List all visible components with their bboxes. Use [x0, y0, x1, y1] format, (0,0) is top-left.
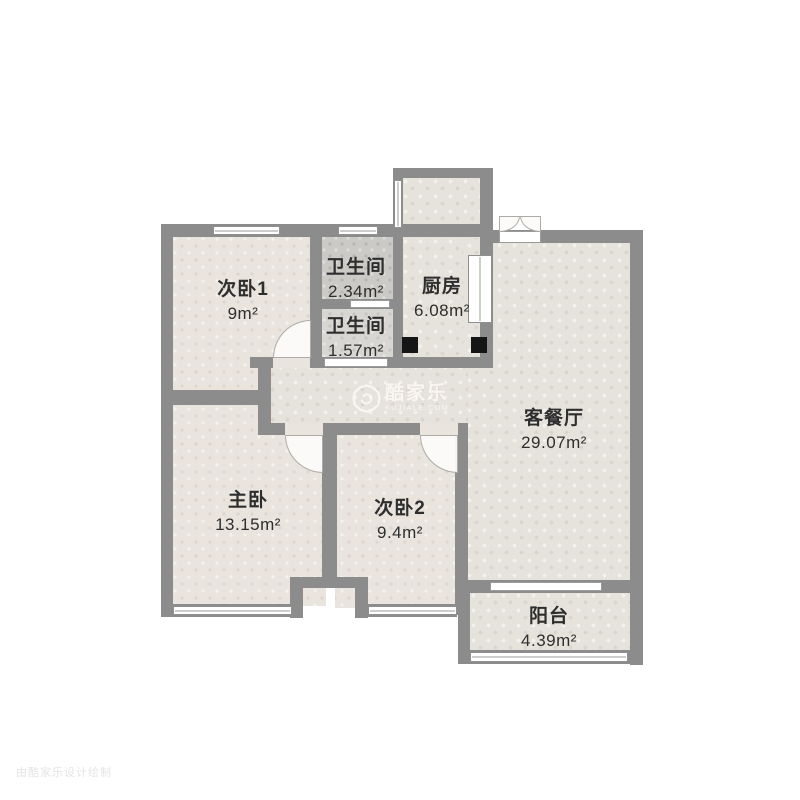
room-name: 客餐厅 [521, 408, 587, 430]
door-opening [273, 357, 310, 368]
room-name: 卫生间 [326, 257, 386, 279]
room-name: 次卧2 [374, 498, 426, 520]
wall [161, 224, 173, 617]
window [468, 255, 492, 323]
room-label-bath-lower: 卫生间 1.57m² [326, 316, 386, 363]
room-area: 2.34m² [326, 279, 386, 304]
window [213, 226, 280, 235]
door-opening [420, 423, 458, 435]
room-label-bedroom2: 次卧2 9.4m² [374, 498, 426, 545]
entry-door-threshold [499, 231, 541, 243]
window [490, 582, 602, 591]
wall [355, 577, 368, 618]
flue-shaft-icon [471, 337, 487, 353]
floor-plan-canvas: 次卧1 9m² 卫生间 2.34m² 厨房 6.08m² 卫生间 1.57m² … [0, 0, 800, 800]
wall [393, 168, 492, 178]
room-area: 1.57m² [326, 338, 386, 363]
room-label-bedroom1: 次卧1 9m² [217, 279, 269, 326]
room-name: 厨房 [414, 276, 470, 298]
room-name: 阳台 [521, 606, 577, 628]
window [470, 652, 628, 662]
window [173, 606, 292, 615]
door-opening [285, 423, 323, 435]
window [394, 180, 402, 228]
room-label-living: 客餐厅 29.07m² [521, 408, 587, 455]
wall [161, 390, 262, 405]
wall [322, 435, 337, 580]
room-area: 9m² [217, 301, 269, 326]
window [338, 226, 378, 235]
room-area: 6.08m² [414, 298, 470, 323]
room-label-master: 主卧 13.15m² [215, 490, 281, 537]
room-label-bath-upper: 卫生间 2.34m² [326, 257, 386, 304]
room-label-balcony: 阳台 4.39m² [521, 606, 577, 653]
wall [258, 357, 271, 435]
wall [630, 230, 643, 665]
room-floor-corridor [258, 360, 468, 426]
room-name: 卫生间 [326, 316, 386, 338]
wall [310, 237, 322, 358]
room-area: 13.15m² [215, 512, 281, 537]
room-name: 主卧 [215, 490, 281, 512]
room-area: 29.07m² [521, 430, 587, 455]
corner-watermark: 由酷家乐设计绘制 [16, 764, 112, 780]
room-area: 4.39m² [521, 628, 577, 653]
room-label-kitchen: 厨房 6.08m² [414, 276, 470, 323]
flue-shaft-icon [402, 337, 418, 353]
room-area: 9.4m² [374, 520, 426, 545]
wall [161, 224, 493, 237]
room-name: 次卧1 [217, 279, 269, 301]
window [368, 606, 457, 615]
